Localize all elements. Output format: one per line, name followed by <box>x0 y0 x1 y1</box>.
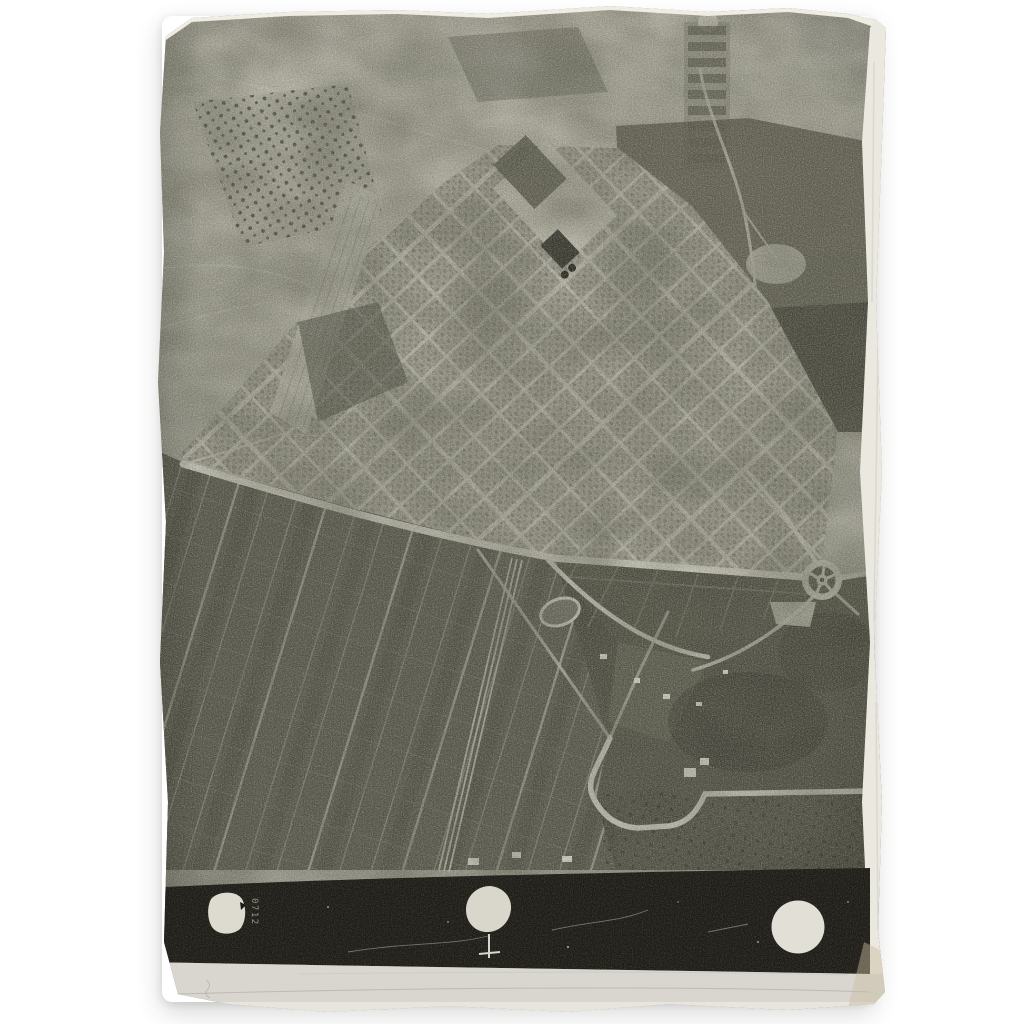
photograph-paper: 0712 <box>148 2 888 1016</box>
punch-hole-right <box>772 901 825 954</box>
punch-hole-left <box>208 893 245 934</box>
film-grain-light <box>148 2 888 1016</box>
aerial-photograph: 0712 <box>148 2 888 1016</box>
product-photo-scene: 0712 <box>0 0 1024 1024</box>
punch-hole-marking: 0712 <box>249 898 259 926</box>
